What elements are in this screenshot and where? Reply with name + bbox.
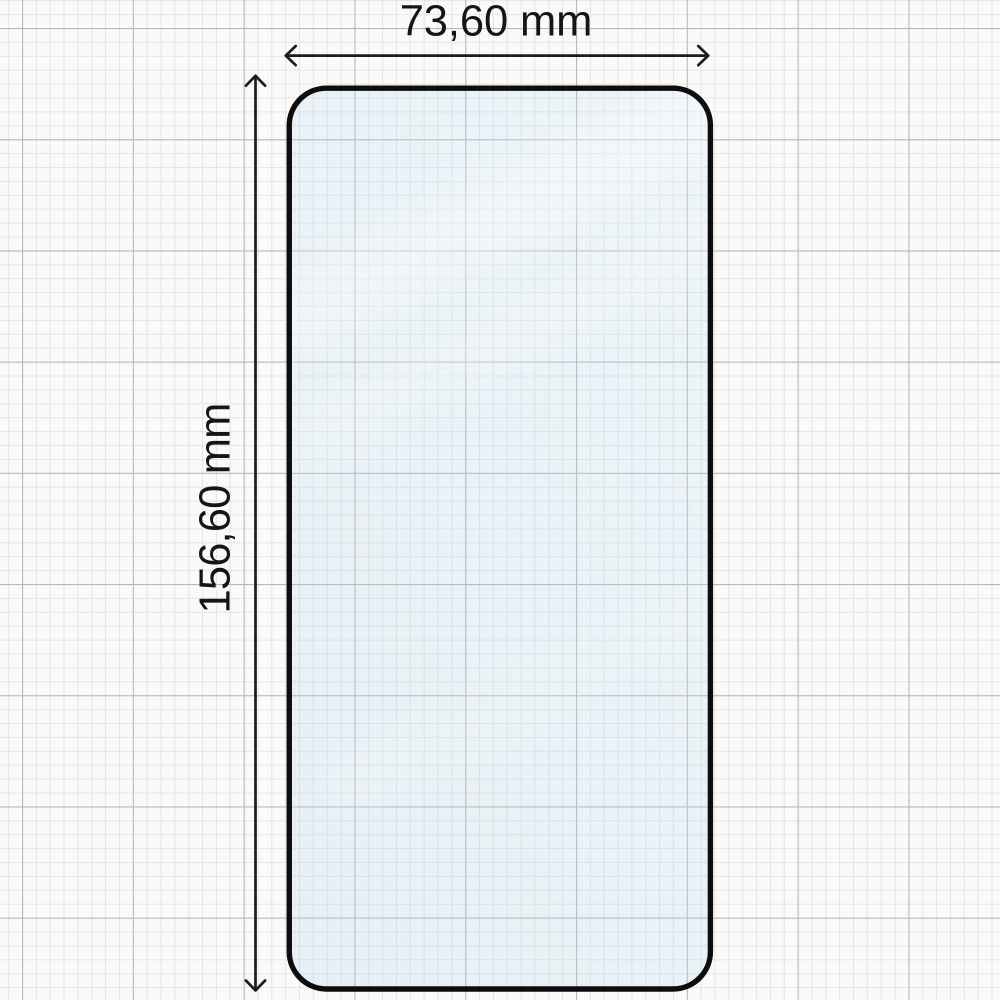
svg-text:156,60 mm: 156,60 mm	[192, 404, 240, 614]
svg-text:73,60 mm: 73,60 mm	[400, 0, 593, 45]
